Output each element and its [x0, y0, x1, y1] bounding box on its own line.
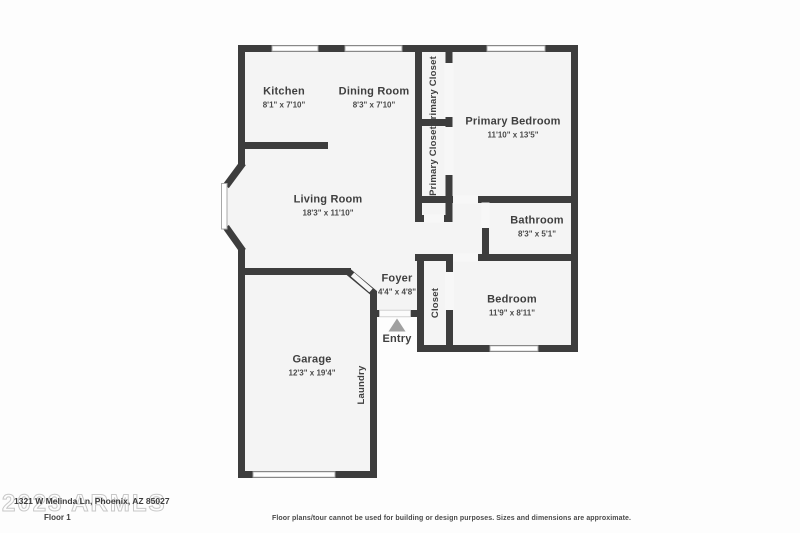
- room-dims: 4'4" x 4'8": [378, 287, 416, 297]
- room-name: Entry: [382, 333, 411, 347]
- room-name: Living Room: [294, 194, 363, 208]
- room-name: Laundry: [356, 366, 368, 405]
- room-dims: 8'1" x 7'10": [263, 100, 306, 110]
- room-name: Dining Room: [339, 86, 410, 100]
- room-label-bedroom: Bedroom 11'9" x 8'11": [487, 294, 537, 319]
- room-dims: 8'3" x 7'10": [339, 100, 410, 110]
- room-dims: 11'9" x 8'11": [487, 308, 537, 318]
- room-dims: 11'10" x 13'5": [465, 130, 560, 140]
- room-dims: 8'3" x 5'1": [510, 229, 564, 239]
- room-name: Closet: [430, 288, 442, 318]
- room-name: Primary Closet: [428, 56, 440, 126]
- room-label-primary-closet-1: Primary Closet: [428, 56, 440, 126]
- room-label-entry: Entry: [382, 333, 411, 347]
- room-label-laundry: Laundry: [356, 366, 368, 405]
- room-label-primary-closet-2: Primary Closet: [428, 126, 440, 196]
- floor-plan-page: Kitchen 8'1" x 7'10" Dining Room 8'3" x …: [0, 0, 800, 533]
- address-text: 1321 W Melinda Ln, Phoenix, AZ 85027: [14, 496, 170, 506]
- room-label-primary-bedroom: Primary Bedroom 11'10" x 13'5": [465, 116, 560, 141]
- room-label-kitchen: Kitchen 8'1" x 7'10": [263, 86, 306, 111]
- room-label-bathroom: Bathroom 8'3" x 5'1": [510, 215, 564, 240]
- room-label-closet: Closet: [430, 288, 442, 318]
- room-dims: 18'3" x 11'10": [294, 208, 363, 218]
- room-name: Garage: [289, 354, 336, 368]
- floor-label: Floor 1: [44, 513, 71, 522]
- room-dims: 12'3" x 19'4": [289, 368, 336, 378]
- room-name: Primary Closet: [428, 126, 440, 196]
- room-label-living-room: Living Room 18'3" x 11'10": [294, 194, 363, 219]
- room-name: Foyer: [378, 273, 416, 287]
- room-name: Kitchen: [263, 86, 306, 100]
- room-name: Bedroom: [487, 294, 537, 308]
- room-label-foyer: Foyer 4'4" x 4'8": [378, 273, 416, 298]
- room-name: Primary Bedroom: [465, 116, 560, 130]
- disclaimer-text: Floor plans/tour cannot be used for buil…: [272, 515, 631, 522]
- room-label-garage: Garage 12'3" x 19'4": [289, 354, 336, 379]
- room-name: Bathroom: [510, 215, 564, 229]
- room-label-dining-room: Dining Room 8'3" x 7'10": [339, 86, 410, 111]
- room-labels: Kitchen 8'1" x 7'10" Dining Room 8'3" x …: [0, 0, 800, 533]
